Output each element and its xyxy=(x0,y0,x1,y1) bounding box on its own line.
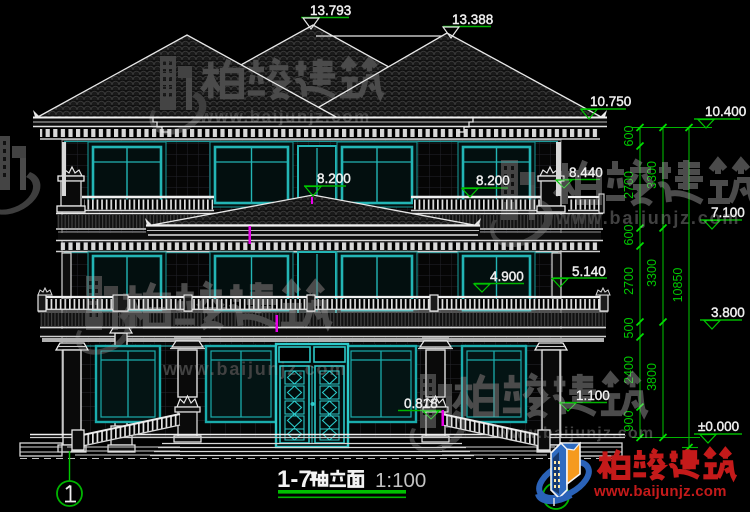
svg-text:3800: 3800 xyxy=(645,363,659,391)
svg-text:www.baijunjz.com: www.baijunjz.com xyxy=(555,208,740,228)
svg-text:www.baijunjz.com: www.baijunjz.com xyxy=(162,359,347,379)
svg-text:10.750: 10.750 xyxy=(590,94,631,109)
svg-text:13.388: 13.388 xyxy=(452,12,493,27)
svg-text:www.baijunjz.com: www.baijunjz.com xyxy=(496,425,654,442)
svg-text:www.baijunjz.com: www.baijunjz.com xyxy=(593,483,727,500)
svg-text:3.800: 3.800 xyxy=(711,305,745,320)
svg-text:10850: 10850 xyxy=(671,268,685,303)
svg-text:8.200: 8.200 xyxy=(317,171,351,186)
svg-text:www.baijunjz.com: www.baijunjz.com xyxy=(199,107,371,126)
svg-text:600: 600 xyxy=(622,126,636,147)
svg-text:±0.000: ±0.000 xyxy=(698,419,739,434)
svg-text:3300: 3300 xyxy=(645,259,659,287)
svg-text:500: 500 xyxy=(622,318,636,339)
svg-text:5.140: 5.140 xyxy=(572,264,606,279)
svg-text:1-7: 1-7 xyxy=(277,466,312,493)
svg-text:2700: 2700 xyxy=(622,267,636,295)
svg-text:1:100: 1:100 xyxy=(375,469,426,492)
svg-text:4.900: 4.900 xyxy=(490,269,524,284)
svg-text:13.793: 13.793 xyxy=(310,3,351,18)
svg-text:10.400: 10.400 xyxy=(705,104,746,119)
